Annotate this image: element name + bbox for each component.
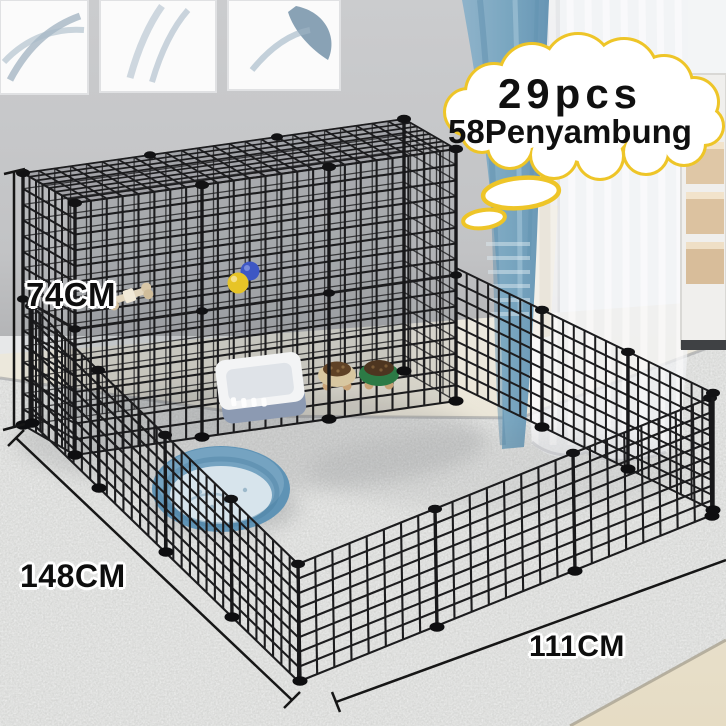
litter-box xyxy=(214,351,307,425)
wall-art-center xyxy=(100,0,216,92)
width-dimension-label: 111CM xyxy=(529,630,625,664)
length-dimension-label: 148CM xyxy=(20,558,126,595)
wall-art-left xyxy=(0,0,88,94)
wall-art-right xyxy=(228,0,340,90)
product-photo-playpen: 29pcs 58Penyambung 74CM 148CM 111CM xyxy=(0,0,726,726)
height-dimension-label: 74CM xyxy=(26,276,116,314)
window-sill xyxy=(681,340,726,350)
callout-connectors-text: 58Penyambung xyxy=(420,115,720,150)
callout-pieces-text: 29pcs xyxy=(430,72,710,116)
toy-ball-yellow xyxy=(228,273,249,294)
